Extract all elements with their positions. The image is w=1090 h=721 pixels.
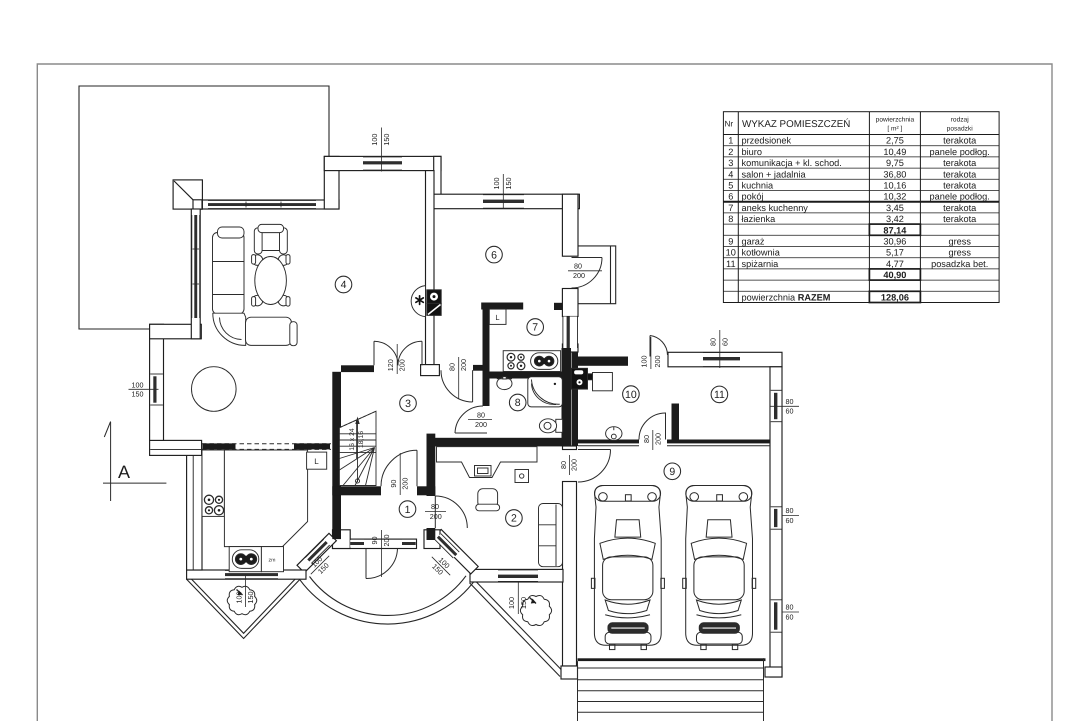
svg-text:garaż: garaż [742,237,765,247]
svg-text:3: 3 [728,158,733,168]
svg-text:7: 7 [532,322,538,334]
svg-text:L: L [314,457,319,466]
svg-text:200: 200 [475,420,487,429]
svg-text:150: 150 [519,597,528,609]
svg-text:2: 2 [511,513,517,525]
svg-text:rodzaj: rodzaj [951,117,969,124]
svg-text:120: 120 [386,359,395,371]
svg-text:100: 100 [492,178,501,190]
svg-text:powierzchnia: powierzchnia [876,117,915,124]
svg-text:11: 11 [726,259,736,269]
svg-text:3,42: 3,42 [886,214,904,224]
svg-text:100: 100 [507,597,516,609]
svg-text:gress: gress [948,237,971,247]
svg-text:200: 200 [653,356,662,368]
svg-text:80: 80 [431,502,439,511]
svg-text:9: 9 [728,237,733,247]
svg-text:4,77: 4,77 [886,259,904,269]
svg-text:128,06: 128,06 [881,293,909,303]
svg-text:5,17: 5,17 [886,248,904,258]
svg-text:10: 10 [625,389,637,401]
svg-text:terakota: terakota [943,214,977,224]
svg-text:11: 11 [714,389,725,401]
svg-text:gress: gress [948,248,971,258]
svg-text:6: 6 [491,249,497,261]
svg-text:80: 80 [786,397,794,406]
svg-text:200: 200 [573,271,585,280]
svg-text:80: 80 [574,262,582,271]
svg-text:terakota: terakota [943,169,977,179]
svg-text:200: 200 [430,512,442,521]
svg-text:powierzchnia RAZEM: powierzchnia RAZEM [742,293,831,303]
svg-text:100: 100 [234,592,243,604]
svg-text:7: 7 [728,203,733,213]
svg-text:80: 80 [448,363,457,371]
svg-text:150: 150 [132,390,144,399]
svg-text:10,16: 10,16 [883,181,906,191]
svg-text:40,90: 40,90 [883,270,906,280]
svg-text:6: 6 [728,192,733,202]
svg-text:150: 150 [246,592,255,604]
svg-text:4: 4 [728,169,733,179]
svg-text:150: 150 [382,134,391,146]
svg-text:4: 4 [341,279,347,291]
svg-text:18,16: 18,16 [358,431,365,448]
svg-text:100: 100 [640,356,649,368]
svg-text:100: 100 [370,134,379,146]
svg-text:80: 80 [709,338,718,346]
svg-text:terakota: terakota [943,181,977,191]
svg-text:komunikacja + kl. schod.: komunikacja + kl. schod. [742,158,842,168]
svg-text:panele podłog.: panele podłog. [930,147,990,157]
svg-text:Nr: Nr [725,120,734,129]
svg-text:200: 200 [382,535,391,547]
svg-text:łazienka: łazienka [742,214,777,224]
svg-text:30,96: 30,96 [883,237,906,247]
svg-text:zm: zm [269,558,276,564]
svg-text:terakota: terakota [943,136,977,146]
svg-text:36,80: 36,80 [883,169,906,179]
svg-text:200: 200 [654,433,663,445]
svg-text:1: 1 [728,136,733,146]
svg-text:16 x 24: 16 x 24 [349,428,356,451]
svg-text:80: 80 [559,461,568,469]
svg-text:10,49: 10,49 [883,147,906,157]
svg-text:WYKAZ POMIESZCZEŃ: WYKAZ POMIESZCZEŃ [742,118,850,130]
svg-text:kuchnia: kuchnia [742,181,775,191]
svg-text:60: 60 [786,516,794,525]
svg-text:terakota: terakota [943,203,977,213]
svg-text:przedsionek: przedsionek [742,136,792,146]
svg-text:salon + jadalnia: salon + jadalnia [742,169,807,179]
svg-text:80: 80 [786,506,794,515]
svg-text:2,75: 2,75 [886,136,904,146]
svg-text:[ m² ]: [ m² ] [887,126,902,133]
svg-text:100: 100 [132,380,144,389]
svg-text:90: 90 [370,537,379,545]
svg-text:200: 200 [570,459,579,471]
svg-text:A: A [118,462,130,482]
svg-text:3,45: 3,45 [886,203,904,213]
svg-text:8: 8 [515,397,521,409]
svg-text:80: 80 [786,603,794,612]
svg-text:200: 200 [398,359,407,371]
svg-text:panele podłog.: panele podłog. [930,192,990,202]
svg-text:10,32: 10,32 [883,192,906,202]
svg-text:terakota: terakota [943,158,977,168]
svg-text:200: 200 [401,478,410,490]
svg-text:80: 80 [642,435,651,443]
svg-text:9: 9 [669,466,675,478]
svg-text:2: 2 [728,147,733,157]
svg-text:60: 60 [720,338,729,346]
svg-text:10: 10 [726,248,736,258]
svg-text:5: 5 [728,181,733,191]
svg-text:9,75: 9,75 [886,158,904,168]
svg-text:1: 1 [405,504,411,516]
svg-text:L: L [495,313,499,322]
svg-text:60: 60 [786,612,794,621]
svg-text:90: 90 [389,480,398,488]
svg-text:200: 200 [459,359,468,371]
svg-text:pokój: pokój [742,192,764,202]
svg-text:posadzka bet.: posadzka bet. [931,259,988,269]
svg-text:aneks kuchenny: aneks kuchenny [742,203,809,213]
svg-text:3: 3 [405,398,411,410]
svg-text:spiżarnia: spiżarnia [742,259,780,269]
svg-text:kotłownia: kotłownia [742,248,781,258]
svg-text:87,14: 87,14 [883,225,907,235]
svg-text:60: 60 [786,407,794,416]
svg-text:biuro: biuro [742,147,762,157]
svg-text:posadzki: posadzki [947,126,974,133]
svg-text:8: 8 [728,214,733,224]
svg-text:80: 80 [477,410,485,419]
svg-text:150: 150 [504,178,513,190]
